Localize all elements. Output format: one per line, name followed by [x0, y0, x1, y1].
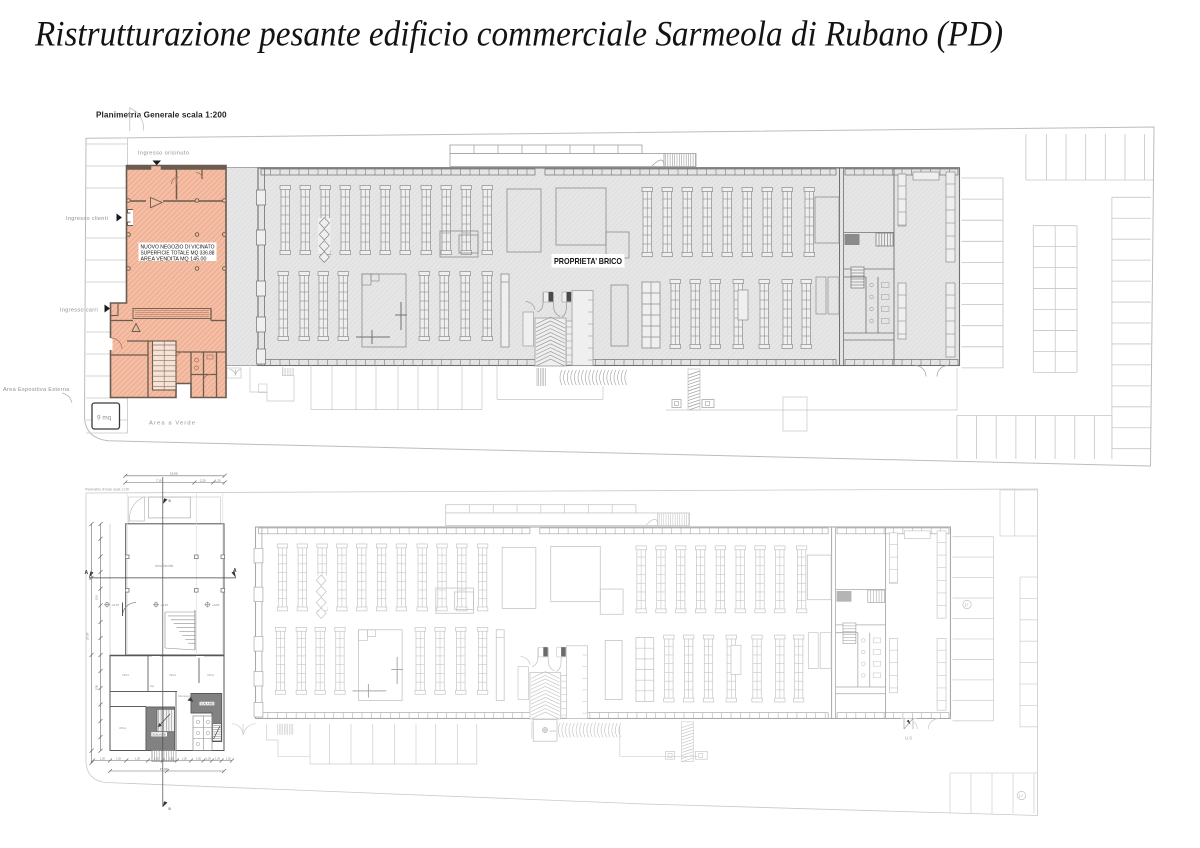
svg-text:U.S: U.S	[905, 736, 912, 741]
svg-text:Area a Verde: Area a Verde	[149, 421, 196, 427]
svg-text:5.10: 5.10	[95, 594, 99, 600]
svg-text:9 mq: 9 mq	[97, 415, 112, 422]
svg-text:SCALA B50: SCALA B50	[200, 702, 214, 706]
svg-text:Ufficio: Ufficio	[122, 673, 130, 677]
svg-text:+0.07: +0.07	[161, 603, 169, 607]
svg-text:1.20: 1.20	[206, 757, 211, 760]
svg-text:Planimetria di base scala 1:10: Planimetria di base scala 1:100	[85, 488, 130, 492]
svg-text:1.20: 1.20	[154, 757, 159, 760]
svg-text:1.20: 1.20	[215, 478, 221, 482]
svg-text:1.20: 1.20	[100, 757, 105, 760]
svg-text:1.20: 1.20	[135, 757, 140, 760]
svg-text:15.60: 15.60	[170, 472, 178, 476]
svg-text:7.10: 7.10	[156, 478, 162, 482]
svg-text:P: P	[965, 603, 969, 609]
svg-text:15.60: 15.60	[160, 767, 168, 771]
svg-text:Ingresso clienti: Ingresso clienti	[66, 216, 108, 222]
svg-text:27.97: 27.97	[86, 632, 90, 640]
svg-text:1.20: 1.20	[116, 757, 121, 760]
svg-text:B: B	[169, 499, 172, 503]
svg-text:Ingresso carri: Ingresso carri	[60, 308, 98, 314]
svg-text:+0.07: +0.07	[212, 603, 220, 607]
svg-text:1.20: 1.20	[226, 757, 231, 760]
svg-text:PROPRIETA’ BRICO: PROPRIETA’ BRICO	[554, 257, 623, 266]
svg-text:AREA VENDITA MQ 145.00: AREA VENDITA MQ 145.00	[141, 257, 207, 263]
svg-text:B: B	[169, 807, 172, 811]
svg-text:Planimetria Generale scala 1:2: Planimetria Generale scala 1:200	[96, 110, 227, 119]
svg-text:+0.07: +0.07	[112, 603, 120, 607]
svg-text:Ristrutturazione pesante edifi: Ristrutturazione pesante edificio commer…	[34, 14, 1003, 54]
svg-text:3.30: 3.30	[95, 684, 99, 690]
svg-text:A: A	[85, 570, 89, 576]
svg-text:Ufficio: Ufficio	[207, 673, 215, 677]
svg-text:Rip.: Rip.	[150, 684, 155, 688]
svg-text:1.20: 1.20	[182, 757, 187, 760]
svg-text:2.20: 2.20	[200, 478, 206, 482]
svg-text:1.20: 1.20	[169, 757, 174, 760]
svg-text:Disimpegno: Disimpegno	[178, 694, 192, 698]
svg-text:Ingresso orisinuto: Ingresso orisinuto	[138, 151, 189, 157]
svg-text:Ufficio: Ufficio	[119, 726, 127, 730]
svg-text:1.20: 1.20	[196, 757, 201, 760]
svg-text:Area Vendita: Area Vendita	[155, 564, 173, 568]
svg-text:Area Espositiva Esterna: Area Espositiva Esterna	[3, 387, 70, 393]
svg-text:P: P	[1019, 794, 1023, 800]
svg-text:SCALA B50: SCALA B50	[152, 733, 166, 737]
svg-text:Ufficio: Ufficio	[169, 673, 177, 677]
svg-text:-0.03: -0.03	[549, 729, 556, 733]
svg-text:1.20: 1.20	[215, 757, 220, 760]
